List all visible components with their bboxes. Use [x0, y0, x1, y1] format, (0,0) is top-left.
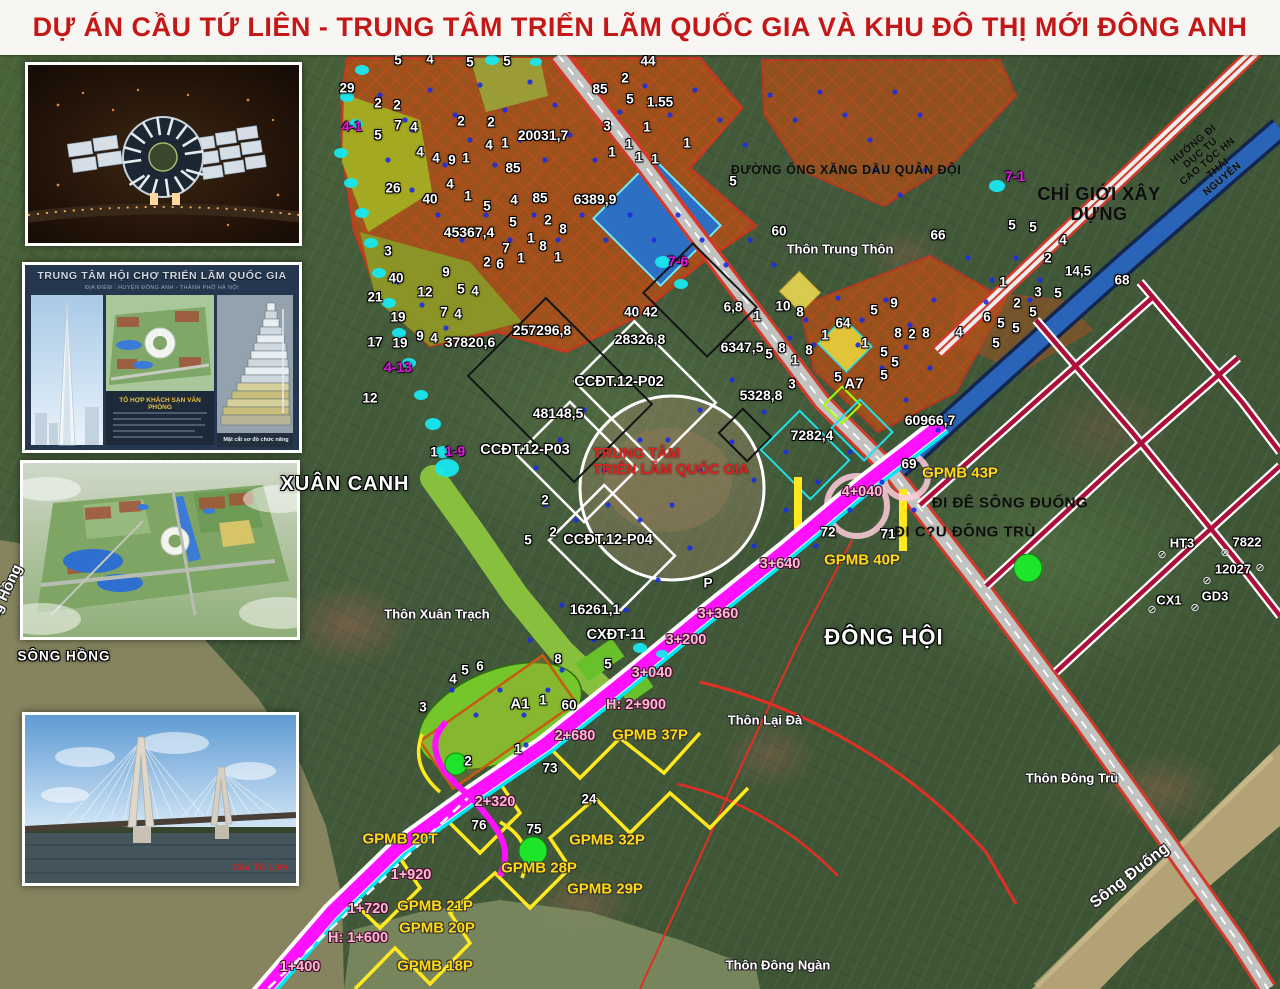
poster-diagram-caption: Mặt cắt sơ đồ chức năng: [217, 437, 295, 443]
gpmb-yellow-boundary: [300, 477, 907, 989]
poster-title: TRUNG TÂM HỘI CHỢ TRIỂN LÃM QUỐC GIA: [25, 270, 299, 282]
bridge-caption: Cầu Tứ Liên: [233, 862, 288, 873]
inset-masterplan-render: [20, 460, 300, 640]
page-title: DỰ ÁN CẦU TỨ LIÊN - TRUNG TÂM TRIỂN LÃM …: [33, 12, 1248, 43]
masterplan-art: [23, 463, 297, 637]
project-map-screenshot: TRUNG TÂM HỘI CHỢ TRIỂN LÃM QUỐC GIA ĐỊA…: [0, 0, 1280, 989]
night-render-art: [28, 65, 299, 243]
title-bar: DỰ ÁN CẦU TỨ LIÊN - TRUNG TÂM TRIỂN LÃM …: [0, 0, 1280, 55]
poster-art: [25, 295, 299, 450]
inset-night-render: [25, 62, 302, 246]
bridge-art: [25, 715, 296, 883]
poster-subtitle: ĐỊA ĐIỂM : HUYỆN ĐÔNG ANH - THÀNH PHỐ HÀ…: [25, 285, 299, 291]
poster-panel-heading: TỔ HỢP KHÁCH SẠN VĂN PHÒNG: [107, 397, 213, 411]
inset-bridge-render: Cầu Tứ Liên: [22, 712, 299, 886]
inset-exhibition-poster: TRUNG TÂM HỘI CHỢ TRIỂN LÃM QUỐC GIA ĐỊA…: [22, 262, 302, 453]
